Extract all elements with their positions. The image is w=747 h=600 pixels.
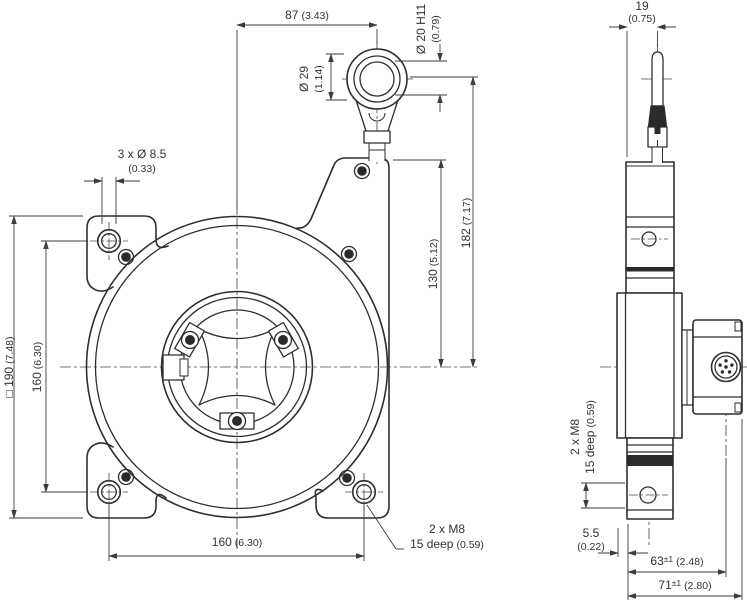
- technical-drawing-page: 87(3.43) Ø 29 (1.14) Ø 20 H11 (0.79) 3 x…: [0, 0, 747, 600]
- thread-note-line2: 15 deep(0.59): [410, 537, 484, 551]
- connector-block: [682, 320, 742, 414]
- drum-housing-side: [617, 293, 682, 438]
- side-thread-note-line1: 2 x M8: [568, 419, 582, 455]
- dim-rope-offset-mm: 19: [635, 0, 649, 13]
- side-thread-note-line2: 15 deep(0.59): [583, 400, 597, 474]
- dim-bracket-offset-mm: 5.5: [583, 526, 600, 540]
- dim-hole-spacing-horizontal: 160(6.30): [212, 535, 262, 549]
- wire-draw-encoder-dimensional-drawing: 87(3.43) Ø 29 (1.14) Ø 20 H11 (0.79) 3 x…: [0, 0, 747, 600]
- dim-plate-square: □ 190(7.48): [2, 336, 16, 397]
- dim-eyelet-ring-inch: (1.14): [313, 65, 325, 92]
- side-body: [617, 147, 682, 519]
- dim-total-depth: 71±1(2.80): [658, 578, 711, 592]
- dim-mounting-holes-inch: (0.33): [128, 163, 155, 175]
- dim-rope-offset-inch: (0.75): [628, 13, 655, 25]
- dim-center-to-eyelet: 87(3.43): [285, 8, 329, 22]
- rope-stem: [652, 147, 663, 163]
- dim-depth-to-connector: 63±1(2.48): [650, 554, 703, 568]
- dim-outlet-height: 130(5.12): [426, 239, 440, 289]
- dim-eyelet-ring-mm: Ø 29: [297, 66, 311, 92]
- dim-eyelet-bore-mm: Ø 20 H11: [414, 3, 428, 54]
- thread-note-line1: 2 x M8: [429, 522, 465, 536]
- dim-hole-spacing-vertical: 160(6.30): [30, 342, 44, 392]
- dim-eyelet-height: 182(7.17): [459, 198, 473, 248]
- dim-bracket-offset-inch: (0.22): [577, 541, 604, 553]
- dim-mounting-holes-mm: 3 x Ø 8.5: [118, 147, 167, 161]
- dim-eyelet-bore-inch: (0.79): [430, 15, 442, 42]
- bottom-lug: [627, 438, 673, 519]
